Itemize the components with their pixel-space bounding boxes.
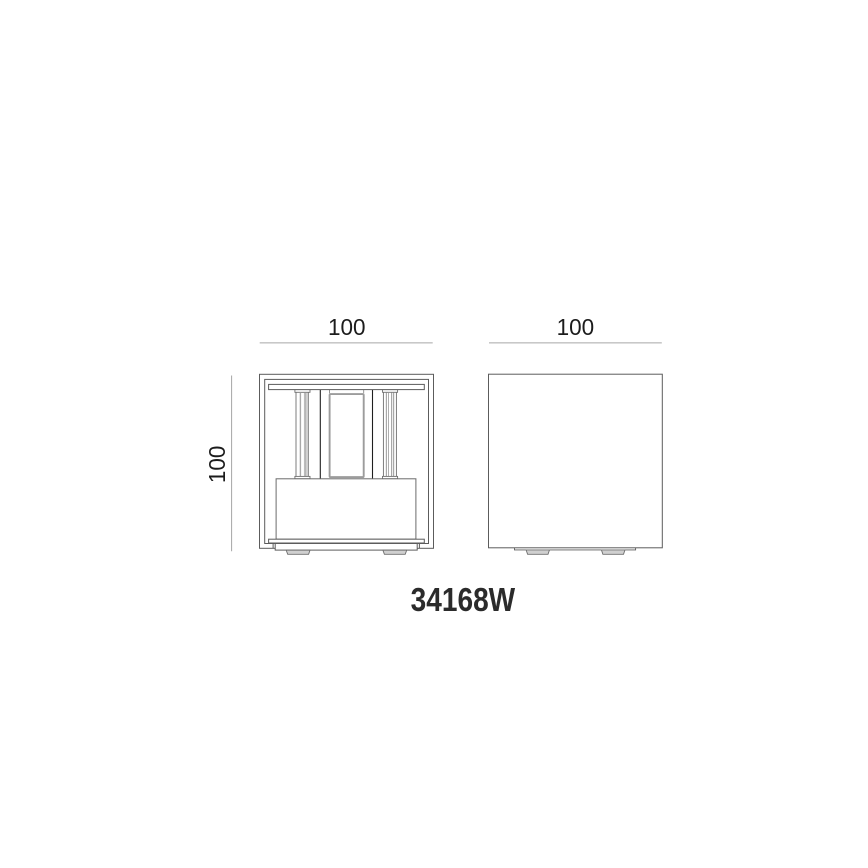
svg-text:100: 100 (328, 314, 366, 340)
svg-text:34168W: 34168W (411, 581, 516, 619)
svg-text:100: 100 (557, 313, 595, 339)
svg-text:100: 100 (204, 446, 230, 484)
